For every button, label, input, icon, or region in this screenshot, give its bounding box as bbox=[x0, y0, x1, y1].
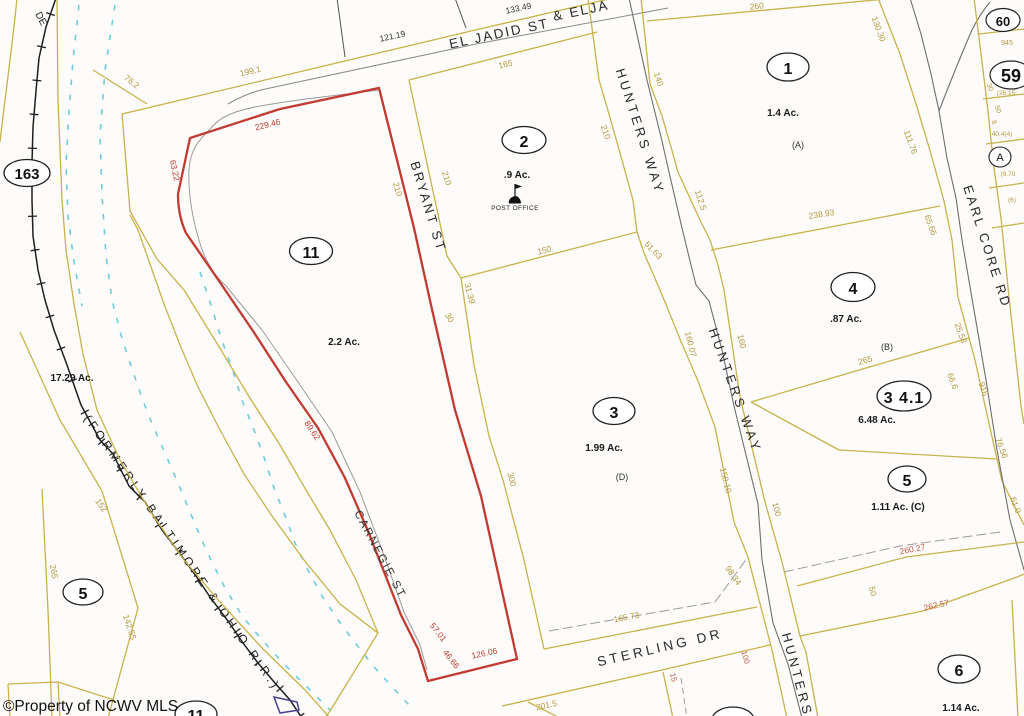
svg-text:59: 59 bbox=[1001, 66, 1021, 86]
svg-text:3 4.1: 3 4.1 bbox=[884, 390, 925, 407]
svg-text:.9 Ac.: .9 Ac. bbox=[504, 170, 531, 181]
svg-text:163: 163 bbox=[14, 166, 39, 183]
svg-text:6: 6 bbox=[955, 663, 964, 680]
svg-text:POST OFFICE: POST OFFICE bbox=[491, 205, 539, 212]
svg-text:11: 11 bbox=[188, 708, 205, 716]
svg-text:.87 Ac.: .87 Ac. bbox=[830, 314, 862, 325]
svg-text:(A): (A) bbox=[792, 140, 804, 150]
svg-text:©Property of NCWV MLS: ©Property of NCWV MLS bbox=[3, 698, 178, 715]
svg-text:945: 945 bbox=[1001, 40, 1013, 47]
svg-text:1: 1 bbox=[784, 61, 793, 78]
svg-text:(9.70: (9.70 bbox=[1001, 171, 1016, 178]
svg-text:(B): (B) bbox=[881, 342, 893, 352]
svg-text:(6): (6) bbox=[1008, 197, 1016, 204]
svg-text:2.2 Ac.: 2.2 Ac. bbox=[328, 337, 360, 348]
svg-text:260: 260 bbox=[749, 0, 764, 11]
svg-text:2: 2 bbox=[520, 134, 529, 151]
svg-text:60: 60 bbox=[996, 14, 1010, 29]
svg-text:1.14 Ac.: 1.14 Ac. bbox=[942, 703, 980, 714]
svg-text:5: 5 bbox=[903, 473, 912, 490]
svg-text:4: 4 bbox=[849, 281, 858, 298]
svg-text:A: A bbox=[996, 152, 1004, 164]
svg-text:5: 5 bbox=[79, 586, 88, 603]
svg-text:1.99 Ac.: 1.99 Ac. bbox=[585, 443, 623, 454]
svg-text:3: 3 bbox=[610, 405, 619, 422]
svg-text:1.11 Ac. (C): 1.11 Ac. (C) bbox=[871, 502, 925, 513]
svg-text:40.4(4): 40.4(4) bbox=[992, 131, 1013, 138]
svg-text:(D): (D) bbox=[616, 472, 629, 482]
svg-text:17.29 Ac.: 17.29 Ac. bbox=[51, 373, 94, 384]
svg-text:6.48 Ac.: 6.48 Ac. bbox=[858, 415, 896, 426]
svg-text:11: 11 bbox=[303, 245, 320, 262]
svg-text:(26.15: (26.15 bbox=[997, 90, 1016, 97]
svg-text:1.4 Ac.: 1.4 Ac. bbox=[767, 108, 799, 119]
